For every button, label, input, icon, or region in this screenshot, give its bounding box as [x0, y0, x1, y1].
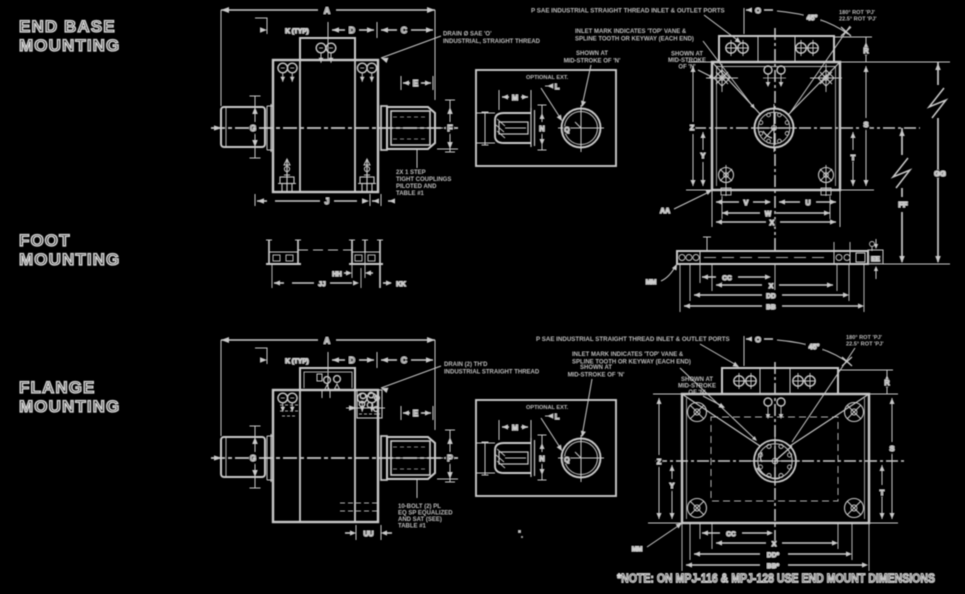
svg-text:EQ SP EQUALIZED: EQ SP EQUALIZED [398, 511, 453, 517]
svg-text:45°: 45° [809, 343, 820, 351]
svg-text:10-BOLT (2) PL: 10-BOLT (2) PL [398, 504, 441, 510]
svg-text:GG: GG [934, 169, 946, 178]
svg-text:O: O [755, 335, 761, 344]
svg-text:S: S [889, 444, 894, 453]
svg-text:Z: Z [657, 459, 662, 466]
svg-text:X: X [770, 220, 775, 227]
svg-text:AND SAT (SEE): AND SAT (SEE) [398, 517, 442, 523]
svg-text:Y: Y [670, 483, 675, 490]
svg-text:MM: MM [632, 546, 643, 553]
svg-text:A: A [324, 336, 330, 346]
svg-text:TABLE #1: TABLE #1 [398, 524, 427, 530]
svg-text:180° ROT 'PJ': 180° ROT 'PJ' [839, 10, 876, 16]
svg-text:R: R [863, 48, 868, 55]
svg-text:2X 1 STEP: 2X 1 STEP [396, 170, 426, 176]
svg-text:P SAE INDUSTRIAL STRAIGHT THRE: P SAE INDUSTRIAL STRAIGHT THREAD INLET &… [536, 336, 730, 343]
svg-text:MID-STROKE: MID-STROKE [668, 58, 706, 64]
svg-text:CC: CC [722, 275, 732, 282]
svg-text:FF: FF [898, 200, 908, 209]
svg-text:FLANGE: FLANGE [19, 378, 95, 397]
svg-text:P: P [447, 453, 453, 463]
svg-text:P SAE INDUSTRIAL STRAIGHT THRE: P SAE INDUSTRIAL STRAIGHT THREAD INLET &… [531, 8, 725, 15]
svg-text:T: T [851, 155, 856, 162]
svg-text:M: M [512, 423, 518, 432]
svg-text:OPTIONAL EXT.: OPTIONAL EXT. [526, 75, 569, 81]
svg-text:PILOTED AND: PILOTED AND [396, 184, 437, 190]
svg-text:E: E [413, 409, 419, 418]
svg-text:END BASE: END BASE [19, 17, 116, 36]
svg-text:MOUNTING: MOUNTING [19, 36, 120, 55]
svg-text:N: N [539, 454, 544, 463]
svg-text:AA: AA [660, 208, 670, 215]
svg-text:Q: Q [564, 457, 570, 464]
svg-text:DRAIN (2) TH'D: DRAIN (2) TH'D [444, 362, 488, 368]
svg-text:BB: BB [766, 304, 776, 311]
svg-text:L: L [555, 82, 560, 91]
svg-text:G: G [250, 454, 256, 463]
svg-text:K (TYP): K (TYP) [285, 28, 308, 35]
svg-text:F: F [447, 123, 452, 133]
svg-text:MOUNTING: MOUNTING [19, 250, 120, 269]
svg-text:KK: KK [396, 281, 406, 288]
svg-text:INLET MARK INDICATES 'TOP' VAN: INLET MARK INDICATES 'TOP' VANE & [575, 29, 687, 35]
svg-text:D: D [349, 25, 355, 35]
svg-text:A: A [324, 6, 330, 16]
svg-text:HH: HH [332, 271, 342, 278]
svg-text:DRAIN Ø SAE 'O': DRAIN Ø SAE 'O' [443, 32, 492, 38]
svg-text:Z: Z [690, 125, 695, 132]
svg-text:CC: CC [726, 531, 736, 538]
svg-text:SHOWN AT: SHOWN AT [576, 51, 608, 57]
svg-text:DD: DD [766, 293, 776, 300]
svg-text:22.5° ROT 'PJ': 22.5° ROT 'PJ' [846, 342, 884, 348]
svg-text:S: S [863, 120, 868, 129]
svg-text:MID-STROKE OF 'N': MID-STROKE OF 'N' [564, 59, 621, 65]
svg-text:C: C [401, 25, 407, 35]
svg-text:J: J [325, 196, 330, 206]
svg-text:22.5° ROT 'PJ': 22.5° ROT 'PJ' [839, 17, 877, 23]
svg-text:Q: Q [564, 127, 570, 134]
svg-text:TIGHT COUPLINGS: TIGHT COUPLINGS [396, 177, 451, 183]
svg-text:INDUSTRIAL STRAIGHT THREAD: INDUSTRIAL STRAIGHT THREAD [444, 370, 540, 376]
svg-text:SHOWN AT: SHOWN AT [681, 377, 713, 383]
svg-text:K (TYP): K (TYP) [285, 358, 308, 365]
svg-text:D: D [349, 355, 355, 365]
svg-text:O: O [755, 6, 761, 15]
svg-text:MID-STROKE OF 'N': MID-STROKE OF 'N' [568, 373, 625, 379]
svg-text:X: X [772, 541, 777, 548]
svg-text:EE: EE [871, 256, 880, 263]
svg-text:180° ROT 'PJ': 180° ROT 'PJ' [846, 335, 883, 341]
svg-text:TABLE #1: TABLE #1 [396, 191, 425, 197]
svg-text:M: M [512, 93, 518, 102]
svg-text:Y: Y [701, 153, 706, 160]
svg-text:SHOWN AT: SHOWN AT [580, 365, 612, 371]
svg-text:W: W [765, 211, 772, 218]
svg-text:UU: UU [363, 531, 373, 538]
svg-text:MM: MM [646, 279, 657, 286]
svg-text:BB*: BB* [767, 563, 779, 570]
svg-text:*NOTE: ON MPJ-116 & MPJ-128 US: *NOTE: ON MPJ-116 & MPJ-128 USE END MOUN… [617, 572, 935, 586]
svg-text:N: N [539, 124, 544, 133]
svg-text:INLET MARK INDICATES 'TOP' VAN: INLET MARK INDICATES 'TOP' VANE & [572, 352, 684, 358]
svg-text:JJ: JJ [318, 281, 326, 288]
svg-text:X: X [769, 283, 774, 290]
svg-text:OPTIONAL EXT.: OPTIONAL EXT. [526, 405, 569, 411]
svg-text:L: L [555, 412, 560, 421]
svg-text:FOOT: FOOT [19, 231, 71, 250]
svg-text:G: G [250, 124, 256, 133]
svg-text:DD*: DD* [767, 552, 779, 559]
svg-text:U: U [805, 200, 810, 207]
svg-text:R: R [884, 380, 889, 387]
svg-text:SHOWN AT: SHOWN AT [671, 52, 703, 58]
svg-text:INDUSTRIAL, STRAIGHT THREAD: INDUSTRIAL, STRAIGHT THREAD [443, 39, 541, 45]
svg-text:C: C [401, 355, 407, 365]
svg-text:T: T [880, 490, 885, 497]
svg-text:V: V [744, 200, 749, 207]
svg-text:MOUNTING: MOUNTING [19, 397, 120, 416]
svg-text:SPLINE TOOTH OR KEYWAY (EACH E: SPLINE TOOTH OR KEYWAY (EACH END) [575, 37, 694, 43]
svg-text:E: E [413, 79, 419, 88]
svg-text:45°: 45° [807, 14, 818, 22]
